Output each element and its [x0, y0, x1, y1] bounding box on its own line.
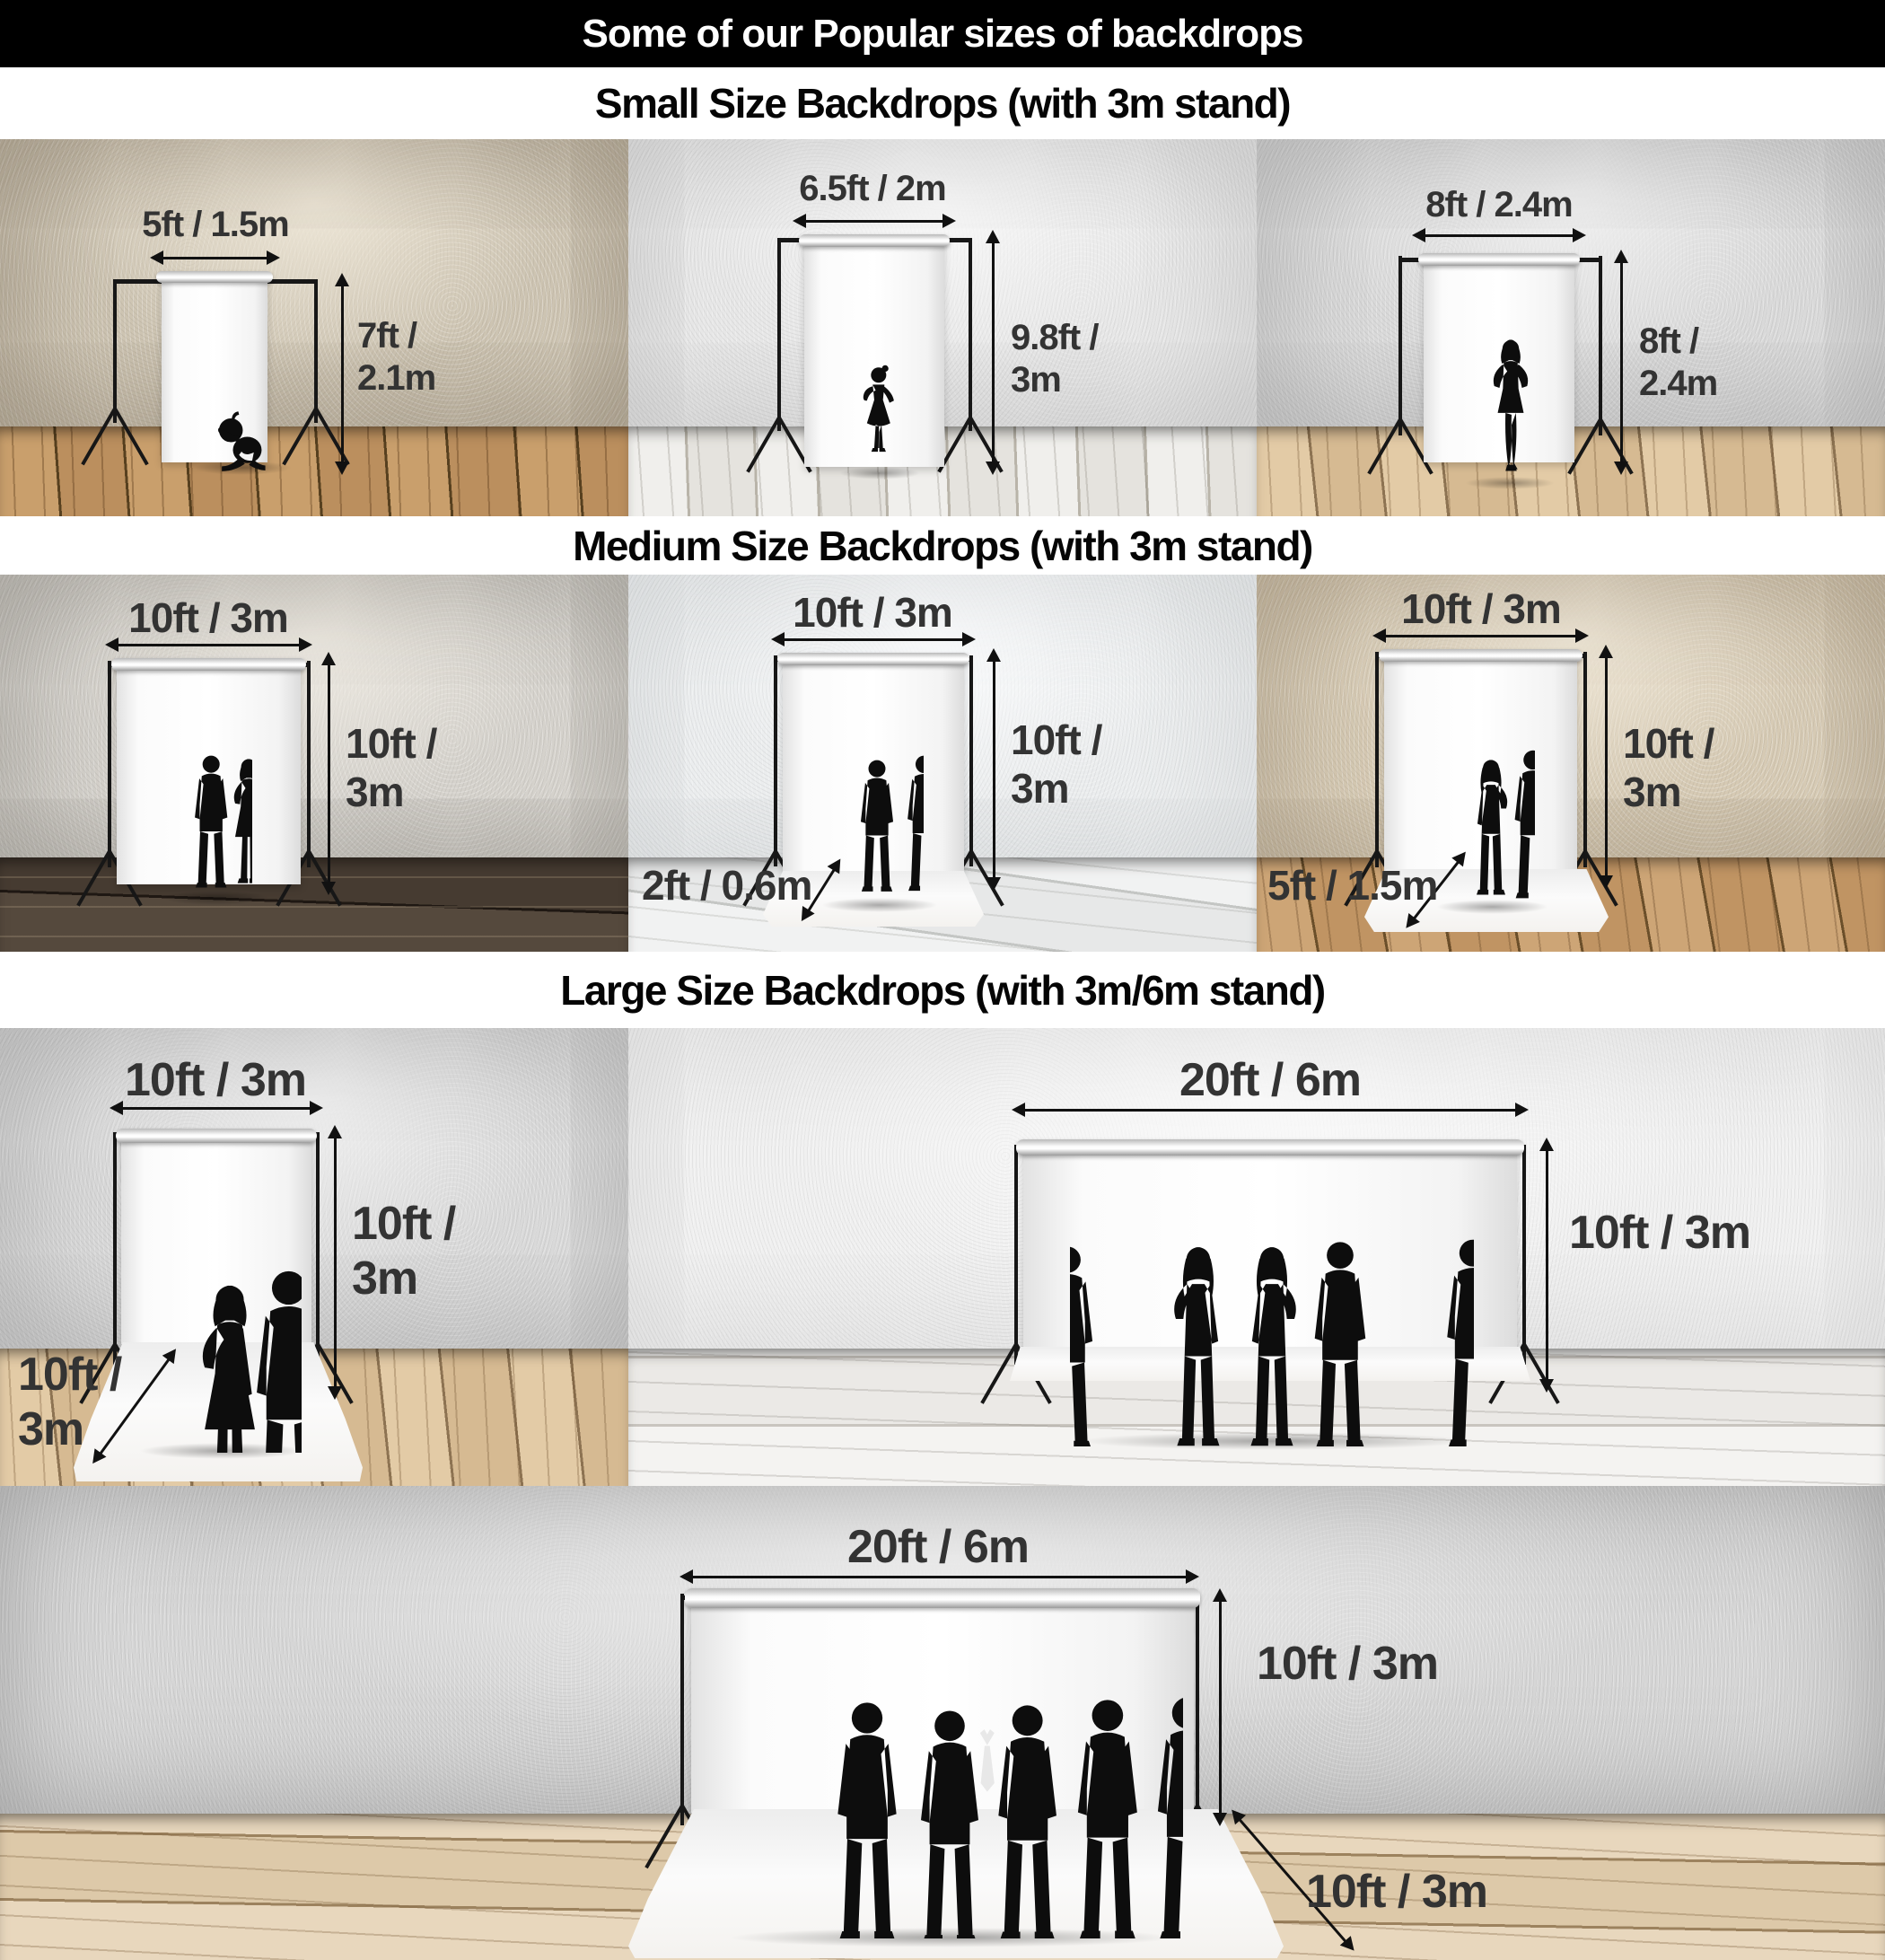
sitting-baby-silhouette [205, 410, 280, 473]
width-arrow [805, 220, 943, 223]
panel-small-8ft: 8ft / 2.4m 8ft / 2.4m [1257, 139, 1885, 516]
concrete-wall [0, 575, 628, 857]
width-label: 20ft / 6m [803, 1520, 1073, 1575]
height-label: 8ft / 2.4m [1639, 321, 1783, 405]
stand-pole-left [1014, 1145, 1018, 1365]
width-arrow [784, 638, 963, 641]
stand-pole-left [108, 661, 111, 867]
section-title-small: Small Size Backdrops (with 3m stand) [0, 67, 1885, 139]
height-arrow [1546, 1150, 1548, 1380]
young-girl-silhouette [855, 355, 901, 471]
couple-silhouette [1447, 734, 1535, 903]
height-arrow [992, 242, 995, 462]
panel-medium-flat: 10ft / 3m 10ft / 3m [0, 575, 628, 952]
panel-medium-5ft-sweep: 10ft / 3m 10ft / 3m 5ft / 1.5m [1257, 575, 1885, 952]
height-arrow [1620, 262, 1623, 462]
width-label: 10ft / 3m [1391, 585, 1571, 634]
stand-pole-right [314, 279, 318, 423]
stand-pole-right [1583, 652, 1587, 867]
six-men-silhouette [716, 1694, 1183, 1938]
width-arrow [1425, 234, 1574, 237]
panel-medium-2ft-sweep: 10ft / 3m 10ft / 3m 2ft / 0.6m [628, 575, 1257, 952]
width-label: 20ft / 6m [1135, 1053, 1405, 1108]
page-title: Some of our Popular sizes of backdrops [582, 12, 1302, 57]
two-men-silhouette [830, 738, 924, 901]
width-label: 10ft / 3m [118, 594, 298, 643]
six-people-silhouette [1070, 1235, 1474, 1446]
backdrop-roll [685, 1588, 1200, 1608]
panel-small-6-5ft: 6.5ft / 2m 9.8ft / 3m [628, 139, 1257, 516]
stand-pole-right [307, 661, 311, 867]
header-bar: Some of our Popular sizes of backdrops [0, 0, 1885, 67]
height-label: 10ft / 3m [1623, 720, 1767, 817]
width-arrow [162, 257, 267, 259]
backdrop-roll [111, 658, 306, 671]
backdrop-roll [799, 234, 950, 247]
backdrop-roll [116, 1129, 317, 1143]
height-label: 10ft / 3m [352, 1197, 504, 1306]
height-arrow [993, 661, 995, 878]
height-label: 10ft / 3m [1569, 1206, 1750, 1261]
floor-depth-label: 2ft / 0.6m [642, 862, 811, 910]
height-arrow [1605, 657, 1608, 876]
width-arrow [692, 1576, 1187, 1578]
section-title-large: Large Size Backdrops (with 3m/6m stand) [0, 952, 1885, 1028]
height-label: 9.8ft / 3m [1011, 317, 1154, 401]
backdrop-roll [156, 271, 273, 283]
backdrop-roll [1016, 1139, 1524, 1156]
shirt-and-tie-detail [980, 1729, 995, 1791]
width-label: 10ft / 3m [783, 589, 962, 637]
backdrop-sizes-infographic: Some of our Popular sizes of backdrops S… [0, 0, 1885, 1960]
width-label: 10ft / 3m [117, 1053, 314, 1108]
floor-depth-label: 10ft / 3m [1306, 1865, 1487, 1920]
section-title-medium: Medium Size Backdrops (with 3m stand) [0, 516, 1885, 575]
floor-depth-label: 5ft / 1.5m [1267, 862, 1437, 910]
concrete-wall [0, 1028, 628, 1349]
width-label: 5ft / 1.5m [126, 204, 305, 246]
height-arrow [341, 286, 344, 462]
stand-pole-left [680, 1594, 684, 1825]
width-arrow [1385, 635, 1576, 637]
height-label: 10ft / 3m [1257, 1637, 1438, 1692]
height-arrow [334, 1138, 337, 1387]
height-arrow [1219, 1601, 1222, 1814]
backdrop-roll [1379, 649, 1583, 662]
height-label: 10ft / 3m [1011, 716, 1154, 813]
stand-pole-left [1375, 652, 1379, 867]
panel-small-5ft: 5ft / 1.5m 7ft / 2.1m [0, 139, 628, 516]
height-arrow [328, 664, 330, 883]
panel-large-20ft: 20ft / 6m 10ft / 3m [628, 1028, 1885, 1486]
floor-depth-label: 10ft / 3m [18, 1348, 175, 1457]
height-label: 10ft / 3m [346, 720, 489, 817]
couple-silhouette [166, 738, 252, 898]
stand-pole-right [969, 238, 972, 431]
stand-pole-left [777, 238, 781, 431]
stand-pole-left [1398, 256, 1402, 435]
panel-large-20ft-sweep: 20ft / 6m 10ft / 3m 10ft / 3m [0, 1486, 1885, 1960]
backdrop-roll [777, 653, 969, 665]
width-label: 8ft / 2.4m [1409, 184, 1589, 226]
stand-pole-right [1522, 1145, 1526, 1365]
height-label: 7ft / 2.1m [357, 315, 492, 400]
stand-pole-right [969, 655, 973, 866]
stand-pole-right [1196, 1594, 1199, 1825]
stand-pole-right [1599, 256, 1602, 435]
stand-pole-left [113, 279, 117, 423]
panel-large-10ft-sweep: 10ft / 3m 10ft / 3m 10ft / 3m [0, 1028, 628, 1486]
stand-pole-left [113, 1132, 117, 1366]
width-arrow [118, 644, 300, 646]
backdrop-roll [1418, 253, 1580, 266]
stand-pole-right [316, 1132, 320, 1366]
stand-pole-left [774, 655, 777, 866]
width-label: 6.5ft / 2m [783, 168, 962, 210]
width-arrow [1024, 1109, 1516, 1112]
posing-woman-silhouette [1483, 338, 1539, 484]
